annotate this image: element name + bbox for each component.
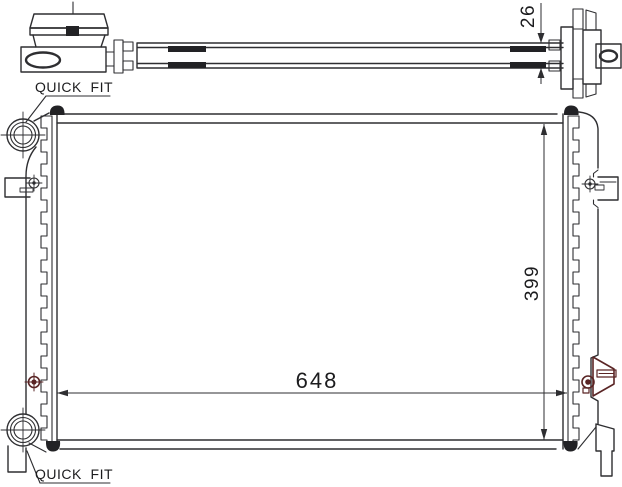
connector-body [21,47,106,72]
connector-cap [30,14,108,28]
connector-clip-black [66,26,79,36]
right-mid-fitting-bar [595,185,604,190]
left-bottom-diagonal [29,443,46,452]
dim-depth-arrow-down [538,33,545,43]
radiator-top-profile-bar [137,40,563,71]
quick-fit-callout-top: QUICK FIT [26,79,113,122]
dim-width-arrow-right [556,390,567,396]
drawing-canvas: 26 [0,0,622,487]
bracket-plate-outer [583,30,601,84]
left-lower-marker-ticks [25,373,43,391]
bracket-plate-inner [561,27,573,89]
bracket-oval-hole [600,51,617,62]
connector-flange-tab-upper [123,42,133,51]
connector-flange-plate [114,40,123,73]
quick-fit-connector-top-left [21,2,133,73]
bracket-tab-upper [573,9,583,29]
right-bottom-diagonal [578,427,596,449]
radiator-technical-drawing: 26 [0,0,622,487]
right-tank-outline [591,209,598,424]
bar-clamp-mark-left-upper [168,46,206,52]
right-tank-top-outline [579,112,598,168]
bar-clamp-mark-right-lower [510,62,546,68]
quick-fit-top-label: QUICK FIT [35,79,113,95]
dim-depth-label: 26 [518,4,539,28]
outlet-pipe-crosshair [1,408,45,452]
right-mid-bracket [598,177,618,200]
bar-clamp-mark-right-upper [510,46,546,52]
connector-taper [33,35,105,47]
connector-link-lines [106,52,114,66]
right-lower-bracket-dot [586,380,590,384]
right-tank [578,112,618,476]
connector-flange-tab-lower [123,61,133,70]
quick-fit-callout-bottom: QUICK FIT [27,451,113,483]
bracket-tab-lower [573,79,583,98]
dim-width-arrow-left [57,390,68,396]
dim-depth-arrow-up [538,68,545,78]
corner-cap-top-right [564,105,579,115]
corner-cap-top-left [50,105,65,115]
front-view: 648 399 QUICK FIT QUICK FIT [1,79,618,483]
core [41,105,579,451]
connector-oval-port [26,53,60,68]
bar-clamp-mark-left-lower [168,62,206,68]
corner-cap-bottom-left [46,441,60,452]
right-bottom-foot [596,424,614,476]
dim-height-arrow-down [541,429,547,440]
bar-clip-right-upper [549,40,560,50]
left-tank [1,112,49,472]
right-tank-bump-lower [594,200,599,208]
dim-height-arrow-up [541,124,547,135]
dim-height-label: 399 [522,265,543,301]
right-crimp-zigzag [568,116,579,447]
dim-width: 648 [57,368,567,396]
bracket-connector-top-right [561,9,621,98]
right-tank-bump-upper [594,170,599,177]
left-crimp-zigzag [41,116,52,447]
dim-width-label: 648 [296,368,339,393]
quick-fit-bottom-label: QUICK FIT [35,466,113,482]
bar-clip-right-lower [549,61,560,71]
corner-cap-bottom-right [563,441,577,452]
